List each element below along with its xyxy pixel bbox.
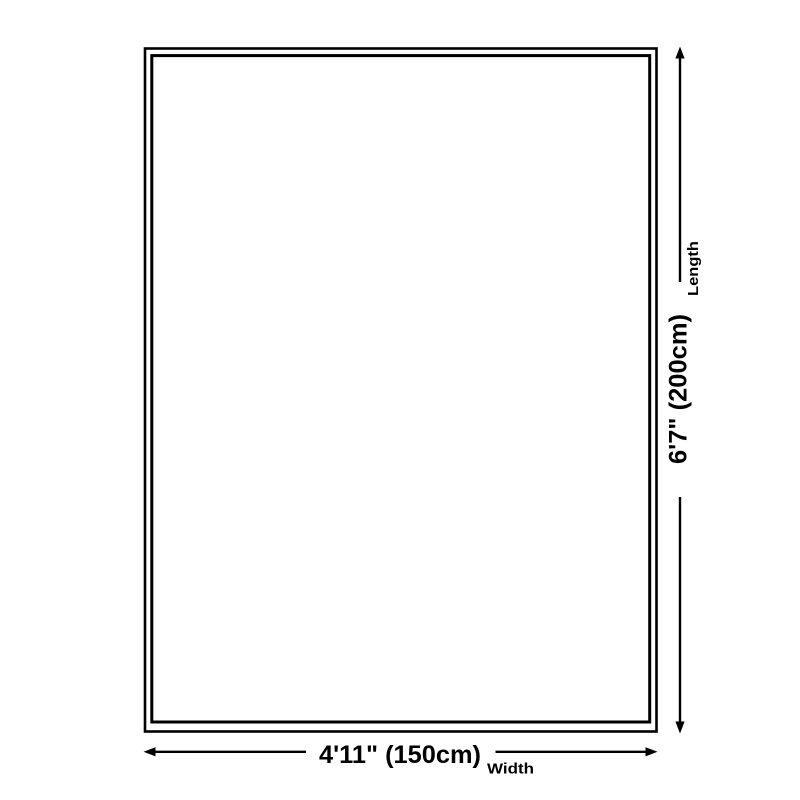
svg-text:4'11" (150cm): 4'11" (150cm)	[319, 741, 481, 769]
svg-text:6'7" (200cm): 6'7" (200cm)	[665, 314, 693, 464]
svg-text:Width: Width	[487, 761, 534, 778]
svg-text:Length: Length	[685, 241, 702, 296]
